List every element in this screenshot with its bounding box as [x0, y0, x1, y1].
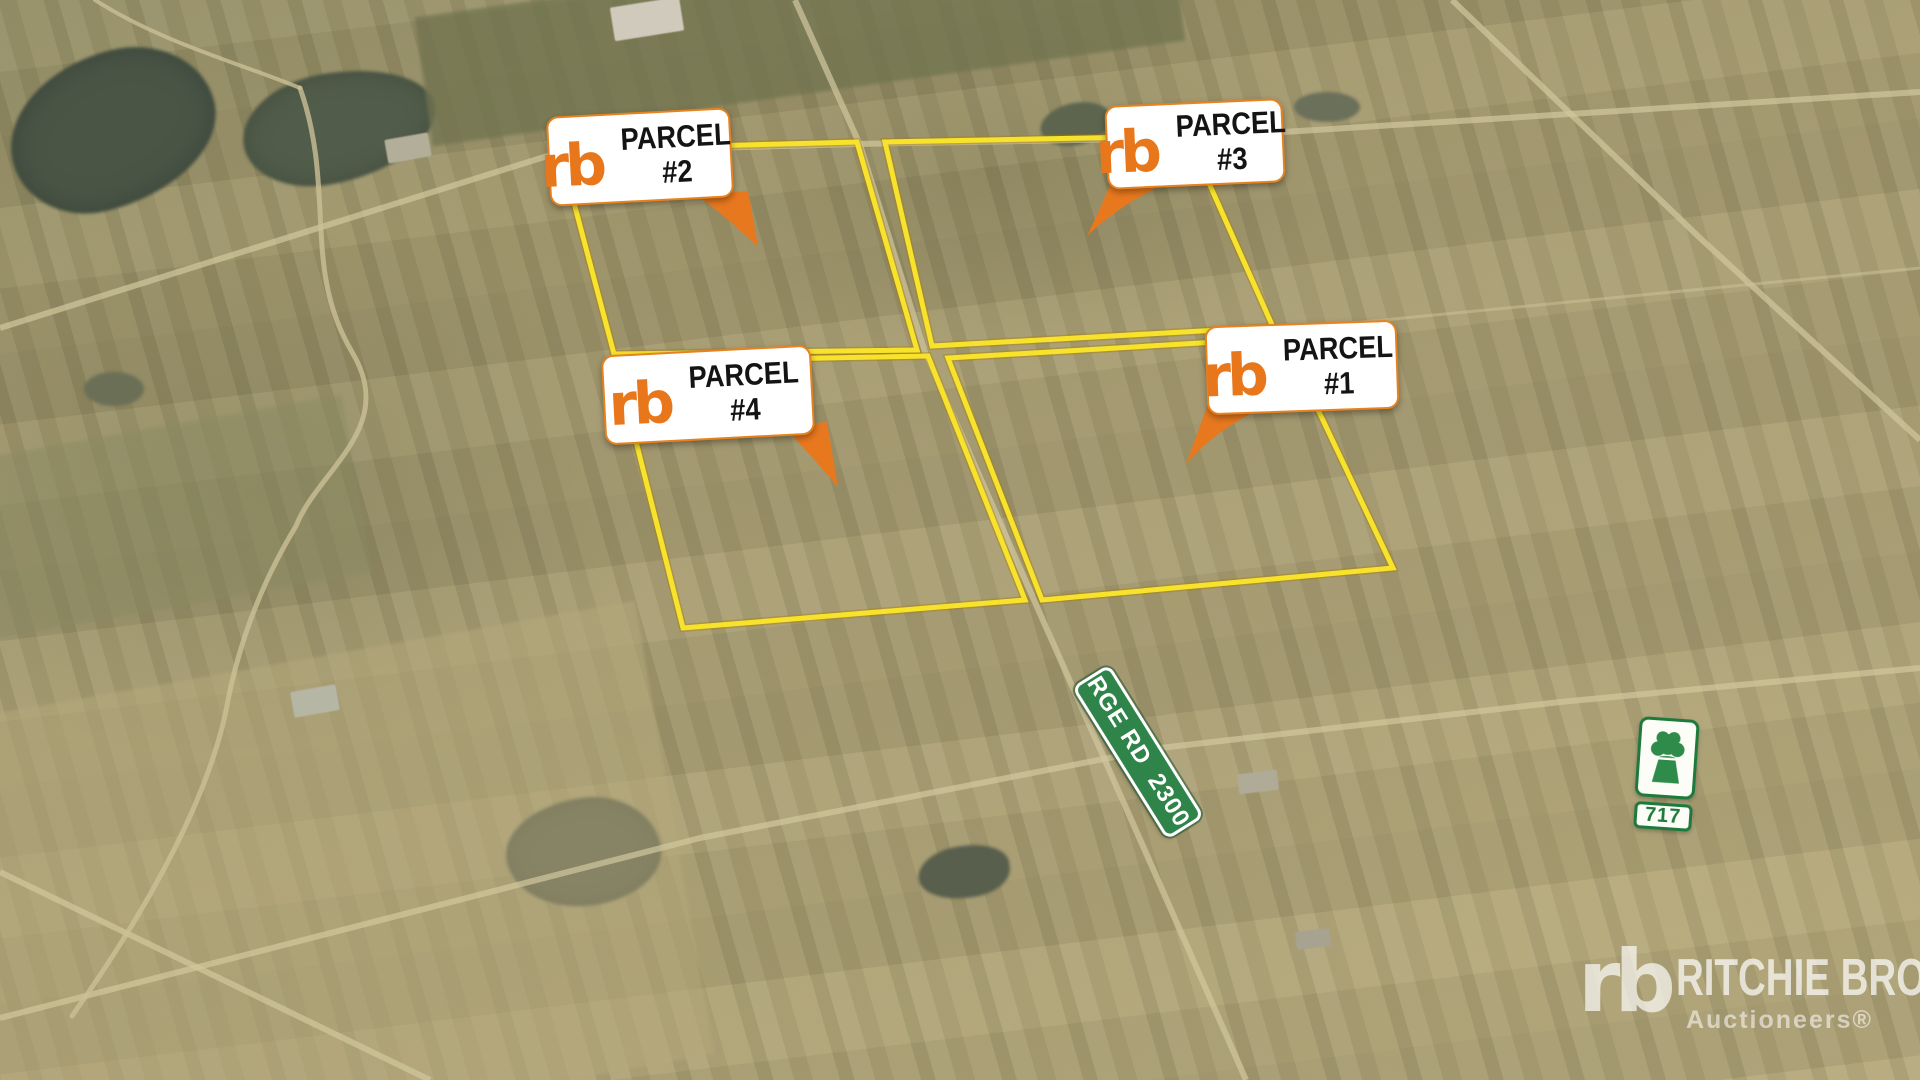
highway-number-plate: 717	[1633, 801, 1693, 832]
parcel-4-label-text: PARCEL #4	[688, 356, 802, 431]
parcel-2-label-text: PARCEL #2	[620, 118, 734, 193]
wheat-sheaf-shield	[1634, 716, 1699, 800]
rb-logo: rb	[1202, 354, 1266, 398]
rb-logo: rb	[540, 144, 604, 189]
parcel-1-label-text: PARCEL #1	[1283, 330, 1395, 403]
parcel-3-pointer	[1087, 185, 1156, 236]
parcel-3-label: rb PARCEL #3	[1104, 98, 1285, 190]
creek-branch	[95, 0, 300, 88]
rb-logo: rb	[608, 382, 672, 427]
watermark-name: RITCHIE BROS.	[1676, 952, 1920, 1004]
parcel-4-label: rb PARCEL #4	[601, 345, 815, 446]
parcel-1-label: rb PARCEL #1	[1205, 320, 1400, 416]
road-east	[1452, 0, 1920, 440]
parcel-2-label: rb PARCEL #2	[546, 107, 734, 207]
map-overlay	[0, 0, 1920, 1080]
range-road-north	[0, 92, 1920, 328]
wheat-sheaf-icon	[1641, 725, 1693, 790]
road-bottom-left	[0, 872, 430, 1080]
ritchie-bros-watermark: rb RITCHIE BROS. Auctioneers®	[1578, 952, 1920, 1035]
creek	[72, 88, 366, 1016]
rb-watermark-logo: rb	[1578, 952, 1670, 1014]
parcel-2-pointer	[697, 191, 758, 247]
highway-717-sign: 717	[1632, 716, 1700, 832]
parcel-3-label-text: PARCEL #3	[1175, 105, 1288, 179]
rb-logo: rb	[1095, 131, 1159, 175]
aerial-parcel-map: rb PARCEL #2 rb PARCEL #3 rb PARCEL #1 r…	[0, 0, 1920, 1080]
watermark-subtitle: Auctioneers®	[1686, 1006, 1920, 1035]
